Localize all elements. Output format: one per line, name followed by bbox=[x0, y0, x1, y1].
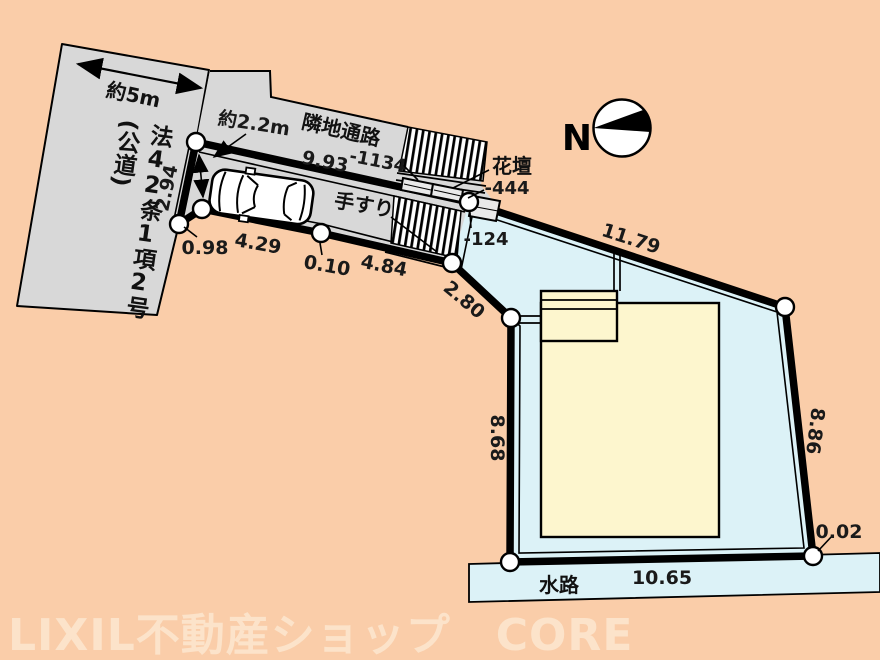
vertex-marker bbox=[501, 553, 519, 571]
flowerbed-label: 花壇 bbox=[492, 154, 532, 178]
vertex-marker bbox=[170, 215, 188, 233]
vertex-marker bbox=[776, 298, 794, 316]
vertex-marker bbox=[443, 254, 461, 272]
vertex-marker bbox=[312, 224, 330, 242]
north-label: N bbox=[562, 118, 592, 159]
flowerbed-elevation: -444 bbox=[484, 178, 529, 199]
site-plan-diagram: N 約5m 2.94 約2.2m 隣地通路 9.93 -1134 手すり 花壇 … bbox=[0, 0, 880, 660]
waterway-label: 水路 bbox=[539, 573, 580, 597]
dim-south-edge: 10.65 bbox=[632, 567, 692, 589]
brand-watermark: LIXIL不動産ショップ CORE bbox=[8, 599, 633, 660]
vertex-marker bbox=[187, 133, 205, 151]
road-name-paren: (公道) bbox=[107, 118, 142, 188]
lower-elevation: -124 bbox=[463, 229, 508, 250]
vertex-marker bbox=[193, 200, 211, 218]
dim-seg-a: 0.98 bbox=[182, 237, 229, 259]
dim-west-edge: 8.68 bbox=[486, 415, 508, 462]
dim-jog: 0.02 bbox=[816, 521, 863, 543]
leader-line bbox=[470, 213, 471, 228]
vertex-marker bbox=[460, 193, 478, 211]
vertex-marker bbox=[502, 309, 520, 327]
house-porch bbox=[541, 291, 617, 341]
